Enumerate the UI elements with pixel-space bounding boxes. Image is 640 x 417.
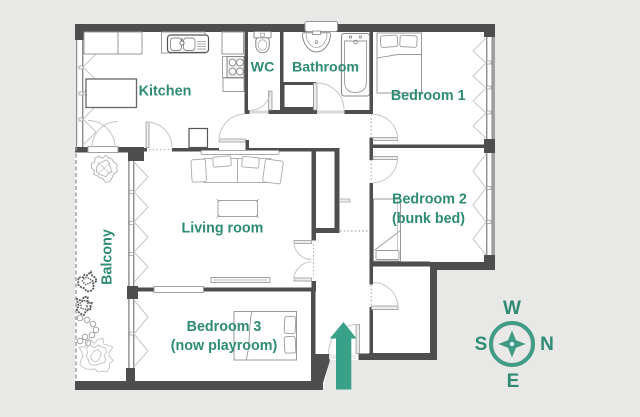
svg-text:WC: WC bbox=[251, 60, 275, 76]
svg-text:Bedroom 1: Bedroom 1 bbox=[391, 88, 466, 104]
svg-text:(now playroom): (now playroom) bbox=[171, 338, 278, 354]
svg-text:S: S bbox=[475, 334, 488, 355]
svg-text:Balcony: Balcony bbox=[100, 229, 116, 285]
svg-text:Kitchen: Kitchen bbox=[139, 83, 192, 99]
svg-text:Bedroom 3: Bedroom 3 bbox=[187, 319, 262, 335]
svg-text:Bathroom: Bathroom bbox=[292, 60, 359, 76]
svg-text:W: W bbox=[503, 298, 521, 319]
svg-text:Bedroom 2: Bedroom 2 bbox=[392, 192, 467, 208]
svg-text:(bunk bed): (bunk bed) bbox=[392, 211, 465, 227]
svg-text:N: N bbox=[540, 334, 554, 355]
svg-text:E: E bbox=[507, 371, 520, 392]
svg-text:Living room: Living room bbox=[181, 221, 263, 237]
